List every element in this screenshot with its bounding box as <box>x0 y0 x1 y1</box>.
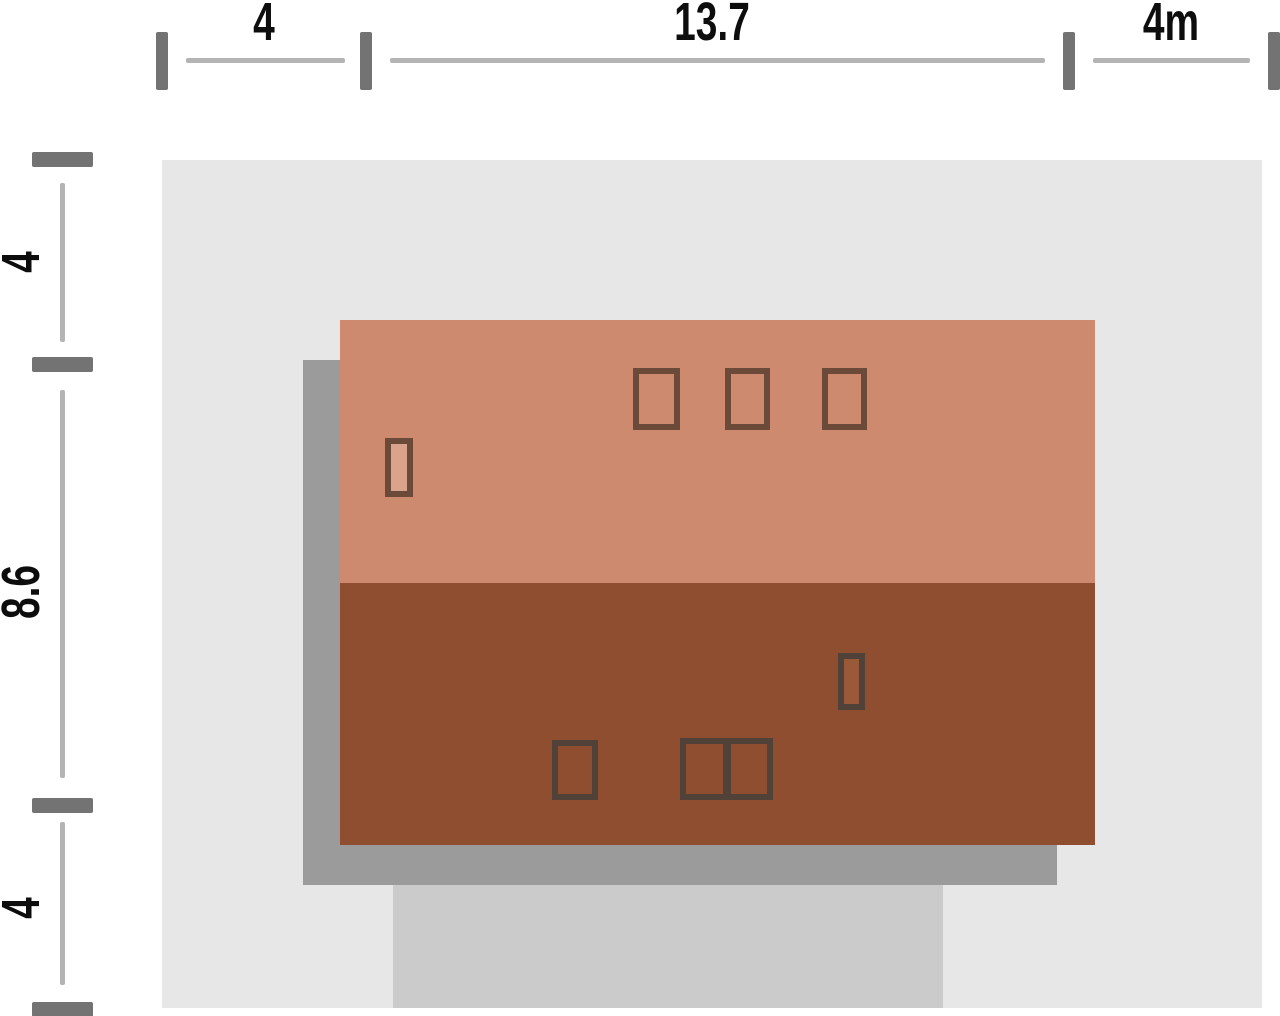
dimension-line <box>60 183 65 342</box>
dimension-line <box>60 822 65 985</box>
chimney <box>385 438 413 497</box>
dimension-line <box>60 390 65 778</box>
dimension-label-left-top: 4 <box>0 251 48 273</box>
roof-upper-slope <box>340 320 1095 583</box>
dimension-label-top-left: 4 <box>253 0 275 49</box>
driveway-area <box>393 885 943 1008</box>
dimension-label-top-right: 4m <box>1143 0 1199 49</box>
house-roof-plan <box>340 320 1095 845</box>
dimension-line <box>186 58 345 63</box>
dimension-line <box>1093 58 1250 63</box>
roof-window <box>633 368 680 430</box>
dimension-tick <box>360 32 372 90</box>
roof-lower-slope <box>340 583 1095 845</box>
chimney <box>838 653 865 710</box>
dimension-tick <box>32 152 93 167</box>
dimension-tick <box>1063 32 1075 90</box>
roof-window <box>552 740 598 800</box>
roof-window <box>822 368 867 430</box>
roof-window-double <box>680 738 773 800</box>
dimension-label-left-bottom: 4 <box>0 897 48 919</box>
dimension-tick <box>32 798 93 813</box>
dimension-tick <box>32 1002 93 1016</box>
dimension-line <box>390 58 1045 63</box>
dimension-tick <box>32 357 93 372</box>
dimension-label-left-middle: 8.6 <box>0 565 48 619</box>
dimension-tick <box>156 32 168 90</box>
dimension-tick <box>1268 32 1280 90</box>
site-plan-canvas: 4 13.7 4m 4 8.6 4 <box>0 0 1280 1016</box>
roof-window <box>725 368 770 430</box>
dimension-label-top-center: 13.7 <box>674 0 750 49</box>
window-mullion <box>723 743 731 795</box>
